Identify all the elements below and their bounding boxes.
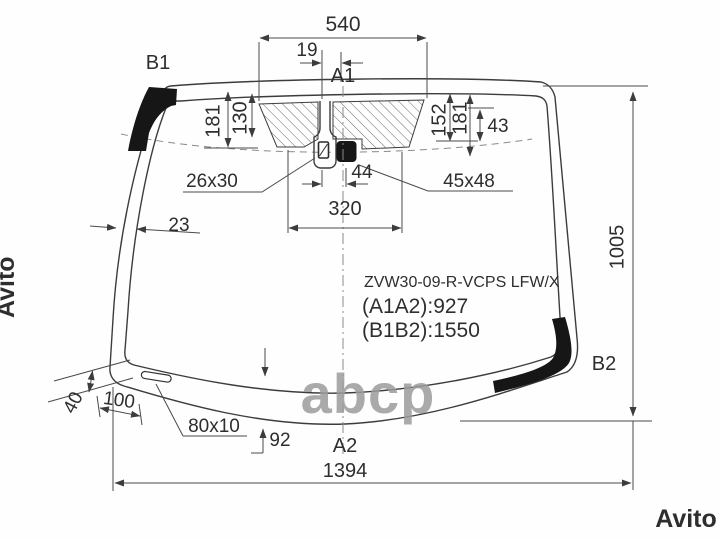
dim-1394-label: 1394: [323, 460, 368, 482]
dim-43-label: 43: [487, 116, 508, 137]
label-b2: B2: [592, 353, 616, 375]
avito-watermark-right: Avito: [655, 505, 717, 533]
avito-watermark-left: Avito: [0, 256, 20, 318]
dim-40-label: 40: [59, 389, 87, 418]
dim-92-label: 92: [269, 430, 290, 451]
corner-b1-black: [128, 87, 177, 151]
part-code: ZVW30-09-R-VCPS LFW/X: [364, 274, 560, 291]
dim-540-label: 540: [325, 13, 360, 36]
label-a1: A1: [331, 65, 355, 87]
windshield-diagram-page: 540 19 A1 B1 181 130 152 181 43 26x30 44…: [0, 0, 720, 540]
dim-45x48-label: 45x48: [443, 171, 495, 192]
dim-19-label: 19: [296, 40, 317, 61]
dim-26x30-label: 26x30: [186, 171, 238, 192]
dim-right-152-label: 152: [428, 103, 450, 136]
dim-44-label: 44: [351, 162, 373, 183]
dim-320-label: 320: [328, 198, 361, 220]
dim-left-130-label: 130: [229, 101, 251, 134]
label-b1: B1: [146, 52, 170, 74]
abcp-watermark: abcp: [301, 362, 436, 425]
part-number-block: ZVW30-09-R-VCPS LFW/X (A1A2):927 (B1B2):…: [362, 274, 560, 342]
windshield-technical-drawing: 540 19 A1 B1 181 130 152 181 43 26x30 44…: [0, 0, 720, 540]
dim-1005-label: 1005: [606, 225, 628, 270]
dim-100-label: 100: [102, 388, 136, 413]
dim-left-181-label: 181: [202, 104, 224, 137]
part-b1b2-length: (B1B2):1550: [362, 319, 480, 342]
dim-80x10-label: 80x10: [188, 416, 240, 437]
dim-right-181-label: 181: [449, 101, 471, 134]
part-a1a2-length: (A1A2):927: [362, 295, 468, 318]
label-a2: A2: [333, 435, 357, 457]
dim-23-label: 23: [168, 215, 189, 236]
camera-45x48: [337, 141, 357, 162]
hatch-left: [259, 102, 318, 147]
corner-b2-black: [493, 317, 572, 393]
